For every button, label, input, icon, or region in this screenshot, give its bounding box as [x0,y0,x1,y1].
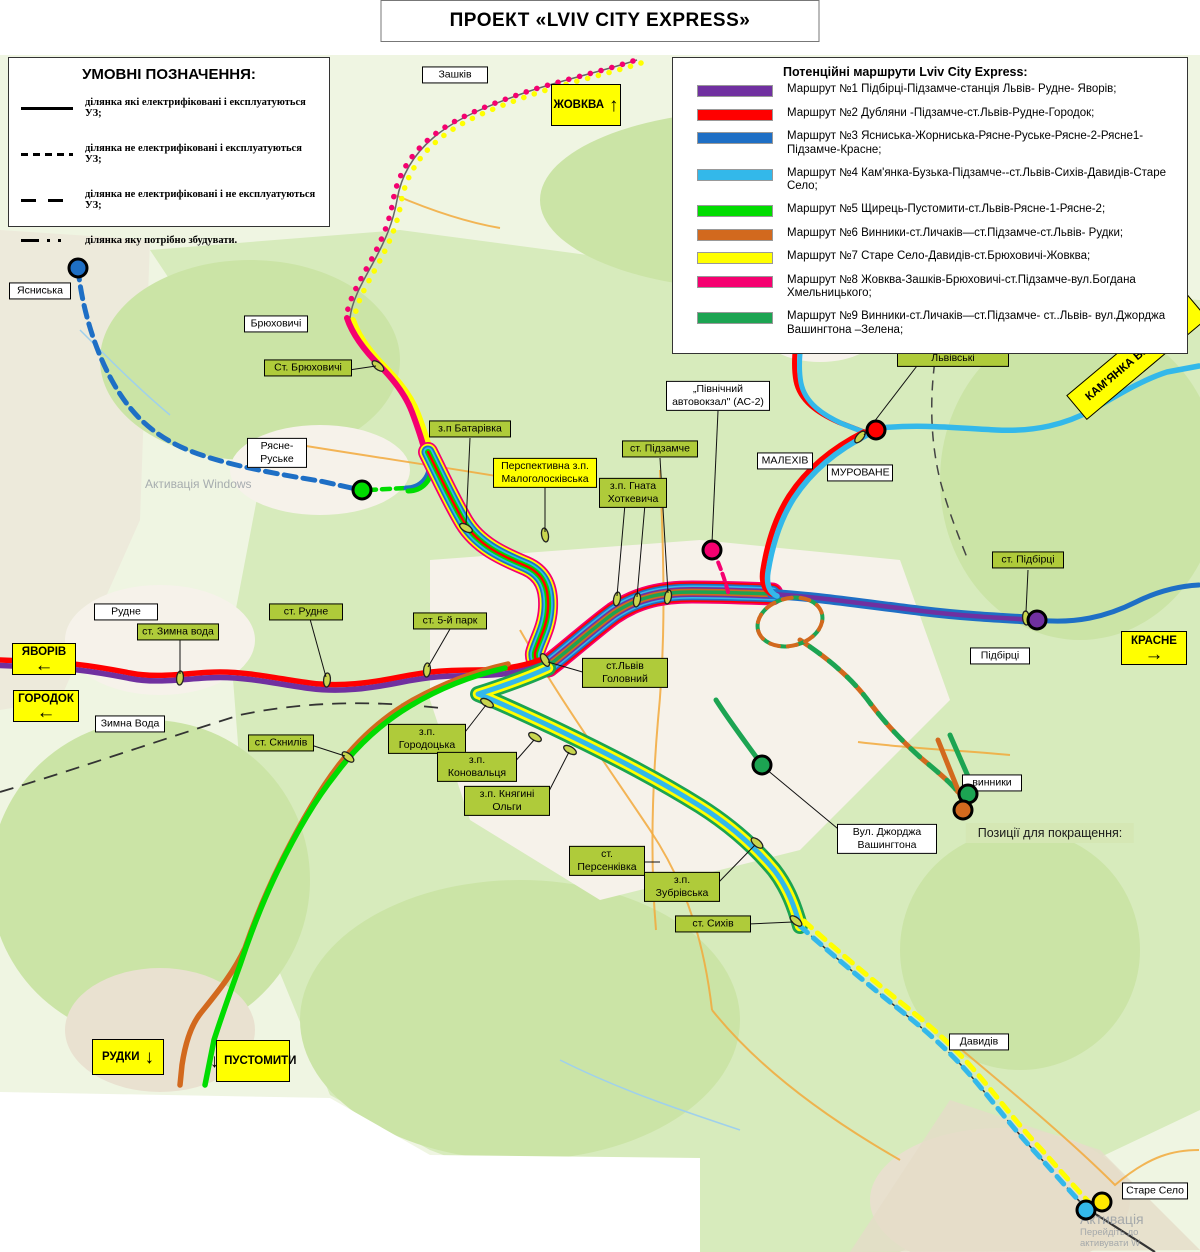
route-legend-item-4: Маршрут №4 Кам'янка-Бузька-Підзамче--ст.… [683,167,1177,194]
route-legend-label: Маршрут №8 Жовква-Зашків-Брюховичі-ст.Пі… [787,274,1177,301]
legend-item: ділянка яку потрібно збудувати. [21,235,321,246]
legend-line-sample-longdash [21,199,73,202]
legend-item: ділянка не електрифіковані і експлуатуют… [21,143,321,165]
route-color-swatch [697,205,773,217]
routes-legend-title: Потенційні маршрути Lviv City Express: [783,65,1177,79]
legend-line-sample-solid [21,107,73,110]
route-legend-item-7: Маршрут №7 Старе Село-Давидів-ст.Брюхови… [683,250,1177,264]
legend-item: ділянка не електрифіковані і не експлуат… [21,189,321,211]
route-legend-item-5: Маршрут №5 Щирець-Пустомити-ст.Львів-Ряс… [683,203,1177,217]
routes-legend-box: Потенційні маршрути Lviv City Express: М… [672,57,1188,354]
route-legend-item-3: Маршрут №3 Ясниська-Жорниська-Рясне-Русь… [683,130,1177,157]
route-color-swatch [697,252,773,264]
route-legend-item-2: Маршрут №2 Дубляни -Підзамче-ст.Львів-Ру… [683,107,1177,121]
page-title: ПРОЕКТ «LVIV CITY EXPRESS» [381,0,820,42]
legend-line-sample-dashed [21,153,73,156]
route-legend-label: Маршрут №9 Винники-ст.Личаків—ст.Підзамч… [787,310,1177,337]
legend-item: ділянка які електрифіковані і експлуатую… [21,97,321,119]
route-legend-label: Маршрут №6 Винники-ст.Личаків—ст.Підзамч… [787,227,1123,241]
route-color-swatch [697,229,773,241]
legend-item-label: ділянка яку потрібно збудувати. [85,235,237,246]
route-color-swatch [697,132,773,144]
route-legend-label: Маршрут №5 Щирець-Пустомити-ст.Львів-Ряс… [787,203,1105,217]
route-legend-label: Маршрут №4 Кам'янка-Бузька-Підзамче--ст.… [787,167,1177,194]
legend-item-label: ділянка не електрифіковані і не експлуат… [85,189,321,211]
legend-item-label: ділянка не електрифіковані і експлуатуют… [85,143,321,165]
route-legend-item-6: Маршрут №6 Винники-ст.Личаків—ст.Підзамч… [683,227,1177,241]
route-legend-item-8: Маршрут №8 Жовква-Зашків-Брюховичі-ст.Пі… [683,274,1177,301]
legend-line-sample-dashdot [21,239,73,242]
route-legend-label: Маршрут №2 Дубляни -Підзамче-ст.Львів-Ру… [787,107,1094,121]
route-legend-item-1: Маршрут №1 Підбірці-Підзамче-станція Льв… [683,83,1177,97]
legend-box: УМОВНІ ПОЗНАЧЕННЯ: ділянка які електрифі… [8,57,330,227]
route-legend-label: Маршрут №7 Старе Село-Давидів-ст.Брюхови… [787,250,1090,264]
route-color-swatch [697,169,773,181]
route-color-swatch [697,276,773,288]
legend-title: УМОВНІ ПОЗНАЧЕННЯ: [17,66,321,83]
route-legend-label: Маршрут №1 Підбірці-Підзамче-станція Льв… [787,83,1117,97]
legend-item-label: ділянка які електрифіковані і експлуатую… [85,97,321,119]
route-legend-item-9: Маршрут №9 Винники-ст.Личаків—ст.Підзамч… [683,310,1177,337]
map-canvas: Ст. Брюховичіз.п БатарівкаПерспективна з… [0,0,1200,1252]
route-color-swatch [697,312,773,324]
route-color-swatch [697,109,773,121]
route-legend-label: Маршрут №3 Ясниська-Жорниська-Рясне-Русь… [787,130,1177,157]
route-color-swatch [697,85,773,97]
